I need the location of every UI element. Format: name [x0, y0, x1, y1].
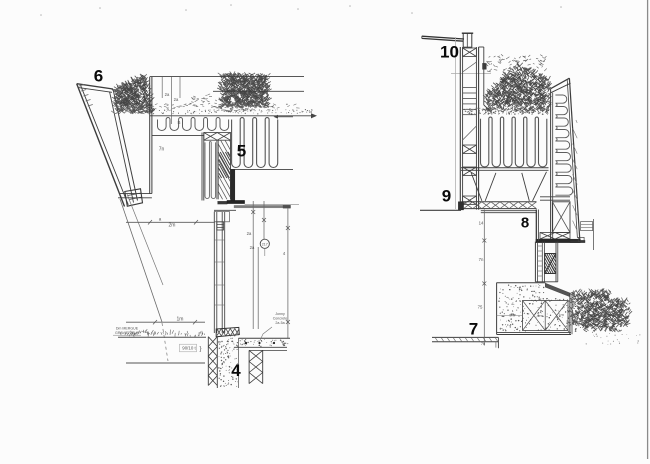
- svg-text:2a: 2a: [165, 92, 170, 97]
- svg-text:6,: 6,: [167, 107, 171, 112]
- svg-text:1m: 1m: [558, 312, 564, 317]
- svg-text:6: 6: [94, 67, 103, 86]
- svg-text:GRAVIER BLN: GRAVIER BLN: [115, 331, 139, 335]
- svg-text:0m: 0m: [537, 313, 543, 318]
- svg-text:9m: 9m: [509, 313, 515, 318]
- svg-text:75: 75: [478, 305, 483, 310]
- svg-text:7b: 7b: [481, 342, 485, 346]
- svg-text:9: 9: [442, 187, 451, 206]
- svg-text:Dm MERGUE: Dm MERGUE: [116, 327, 139, 331]
- svg-text:14: 14: [479, 221, 484, 226]
- svg-text:217: 217: [262, 242, 268, 246]
- svg-text:2a-5a: 2a-5a: [275, 321, 284, 325]
- svg-text:Jonny: Jonny: [275, 312, 285, 316]
- svg-text:5: 5: [237, 142, 246, 161]
- svg-text:4: 4: [231, 361, 241, 380]
- svg-text:5·a: 5·a: [193, 96, 200, 101]
- svg-text:8: 8: [521, 215, 529, 232]
- svg-text:1m: 1m: [177, 317, 184, 323]
- svg-text:2m: 2m: [169, 223, 176, 229]
- svg-text:2a: 2a: [174, 97, 179, 102]
- svg-text:2a: 2a: [247, 231, 252, 236]
- svg-text:2a: 2a: [250, 245, 255, 250]
- svg-text:7n: 7n: [479, 257, 484, 262]
- svg-text:B: B: [177, 120, 180, 125]
- svg-text:7n: 7n: [159, 147, 165, 153]
- svg-text:90/10 t: 90/10 t: [182, 346, 196, 351]
- svg-text:10: 10: [440, 43, 459, 62]
- svg-text:Bma: Bma: [226, 102, 235, 107]
- svg-text:Concrete: Concrete: [273, 317, 288, 321]
- svg-text:7: 7: [469, 320, 478, 339]
